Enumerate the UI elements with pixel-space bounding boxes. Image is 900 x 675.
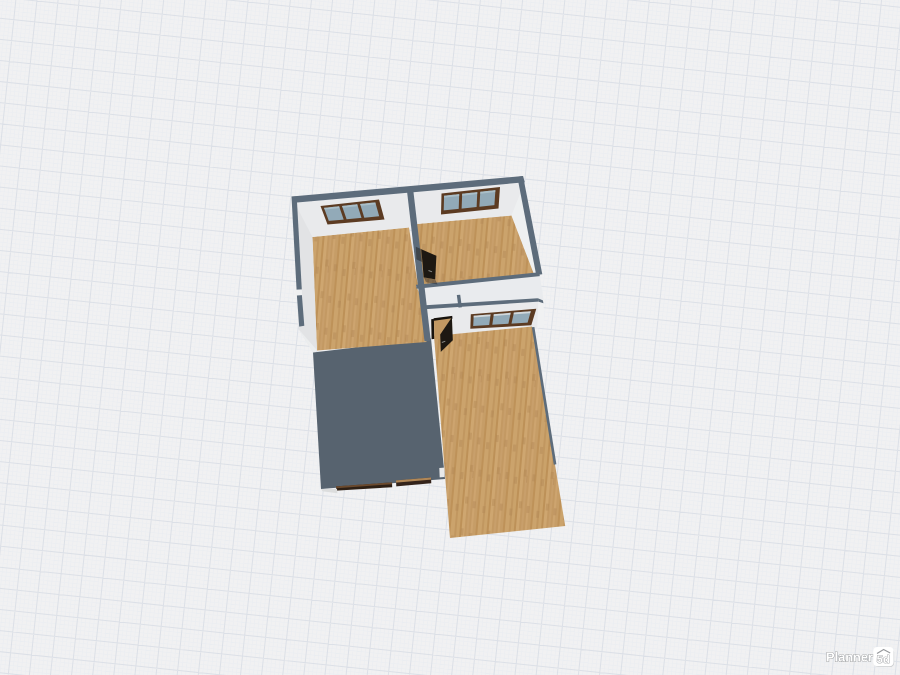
svg-text:Planner: Planner xyxy=(826,650,873,665)
svg-text:5d: 5d xyxy=(877,654,890,666)
